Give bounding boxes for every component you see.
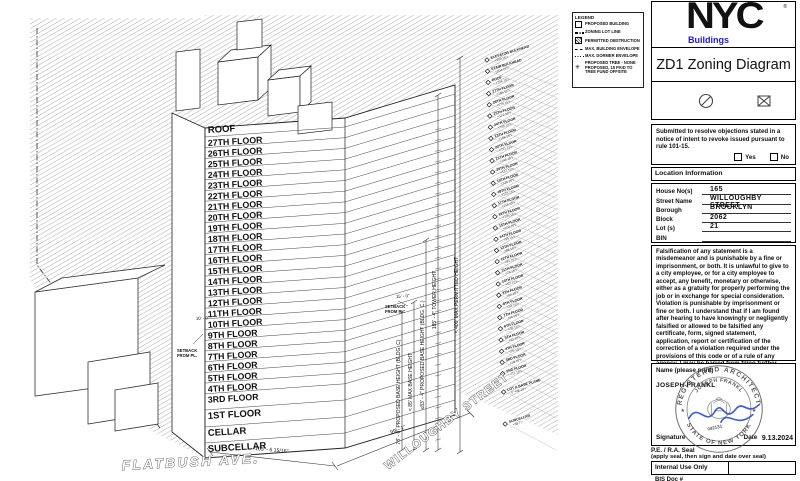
field-value: BROOKLYN	[702, 204, 791, 214]
location-field-row: Lot (s)21	[656, 223, 791, 232]
bis-doc-label: BIS Doc #	[655, 477, 683, 481]
legend-item: ✳PROPOSED TREE - NONE PROPOSED, 15 PAID …	[575, 61, 641, 75]
legend-item: ZONING LOT LINE	[575, 30, 641, 35]
svg-text:15' - 0": 15' - 0"	[396, 293, 410, 299]
field-label: Lot (s)	[656, 225, 702, 232]
field-value: WILLOUGHBY STREET	[702, 195, 791, 205]
prohibition-icon	[698, 93, 714, 109]
dash-dot-line-icon	[575, 32, 584, 34]
location-field-row: House No(s)165	[656, 186, 791, 195]
legend: LEGEND PROPOSED BUILDINGZONING LOT LINEP…	[572, 12, 644, 88]
legend-item-label: ZONING LOT LINE	[585, 30, 621, 35]
field-label: Street Name	[656, 198, 702, 205]
form-title-bar: ZD1 Zoning Diagram	[652, 48, 795, 82]
seal-number: 042131	[707, 423, 723, 431]
legend-title: LEGEND	[575, 15, 641, 20]
form-header-box: NYC ® Buildings ZD1 Zoning Diagram	[651, 1, 796, 120]
hatched-square-icon	[575, 37, 582, 44]
legend-item: PERMITTED OBSTRUCTION	[575, 37, 641, 44]
legend-item: PROPOSED BUILDING	[575, 21, 641, 28]
street-label-flatbush: FLATBUSH AVE.	[121, 451, 260, 473]
floor-label: CELLAR	[208, 426, 247, 439]
svg-text:FROM PL.: FROM PL.	[385, 309, 405, 314]
location-field-row: BIN	[656, 232, 791, 241]
form-title: ZD1 Zoning Diagram	[656, 57, 791, 73]
dotted-line-icon	[575, 56, 584, 57]
legend-item-label: PERMITTED OBSTRUCTION	[585, 39, 640, 44]
falsification-box: Falsification of any statement is a misd…	[651, 245, 796, 361]
field-value: 165	[702, 186, 791, 196]
legend-item-label: PROPOSED TREE - NONE PROPOSED, 15 PAID T…	[585, 61, 641, 75]
svg-text:FROM PL.: FROM PL.	[177, 353, 197, 358]
location-field-row: Block2062	[656, 214, 791, 223]
field-label: BIN	[656, 235, 702, 242]
buildings-wordmark: Buildings	[688, 35, 729, 45]
vertical-dimension-label: < 85' MAX BASE HEIGHT	[408, 353, 414, 411]
stamp-icons-row	[652, 82, 795, 121]
legend-item-label: MAX. DORMER ENVELOPE	[585, 54, 638, 59]
legend-item: MAX. BUILDING ENVELOPE	[575, 47, 641, 52]
nyc-wordmark: NYC	[686, 0, 761, 37]
field-label: Block	[656, 216, 702, 223]
axonometric-drawing: ROOF27TH FLOOR26TH FLOOR25TH FLOOR24TH F…	[0, 0, 650, 481]
legend-item-label: PROPOSED BUILDING	[585, 22, 629, 27]
svg-text:JOSEPH FRANKL: JOSEPH FRANKL	[694, 378, 744, 394]
location-field-row: BoroughBROOKLYN	[656, 205, 791, 214]
no-checkbox[interactable]	[770, 153, 778, 161]
floor-label: ROOF	[208, 123, 236, 136]
objections-box: Submitted to resolve objections stated i…	[651, 124, 796, 165]
square-outline-icon	[575, 21, 582, 28]
location-field-row: Street NameWILLOUGHBY STREET	[656, 195, 791, 204]
field-value: 21	[702, 223, 791, 233]
legend-item-label: MAX. BUILDING ENVELOPE	[585, 47, 640, 52]
tower-left-face	[172, 113, 205, 458]
dashed-line-icon	[575, 49, 584, 50]
location-information-header: Location Information	[651, 167, 796, 181]
architect-seal: REGISTERED ARCHITECT STATE OF NEW YORK J…	[672, 362, 766, 456]
nyc-buildings-logo: NYC ® Buildings	[652, 2, 795, 48]
crossed-box-icon	[756, 93, 772, 109]
yes-label: Yes	[745, 154, 756, 161]
field-value	[702, 232, 791, 242]
vertical-dimension-label: ≤83' - 4" PROPOSED BASE HEIGHT (BLDG. C.…	[420, 300, 426, 409]
vertical-dimension-label: < 400' MAX PERMITTED HEIGHT	[454, 257, 460, 333]
date-value: 9.13.2024	[762, 435, 793, 442]
elevation-marker-diamond	[503, 422, 507, 426]
yes-checkbox[interactable]	[734, 153, 742, 161]
location-fields: House No(s)165Street NameWILLOUGHBY STRE…	[651, 183, 796, 243]
registered-mark-icon: ®	[783, 4, 787, 10]
field-label: Borough	[656, 207, 702, 214]
svg-text:10' - 0": 10' - 0"	[196, 315, 210, 321]
tree-icon: ✳	[575, 65, 580, 71]
seal-star-left: ★	[680, 408, 685, 414]
objections-text: Submitted to resolve objections stated i…	[656, 128, 791, 151]
no-label: No	[781, 154, 789, 161]
internal-use-label: Internal Use Only	[652, 462, 729, 474]
internal-use-box: Internal Use Only	[651, 461, 796, 475]
legend-item: MAX. DORMER ENVELOPE	[575, 54, 641, 59]
field-label: House No(s)	[656, 188, 702, 195]
vertical-dimension-label: 185' - 4" TOWER HEIGHT	[432, 271, 438, 329]
field-value: 2062	[702, 214, 791, 224]
zd1-zoning-diagram-sheet: ROOF27TH FLOOR26TH FLOOR25TH FLOOR24TH F…	[0, 0, 800, 481]
